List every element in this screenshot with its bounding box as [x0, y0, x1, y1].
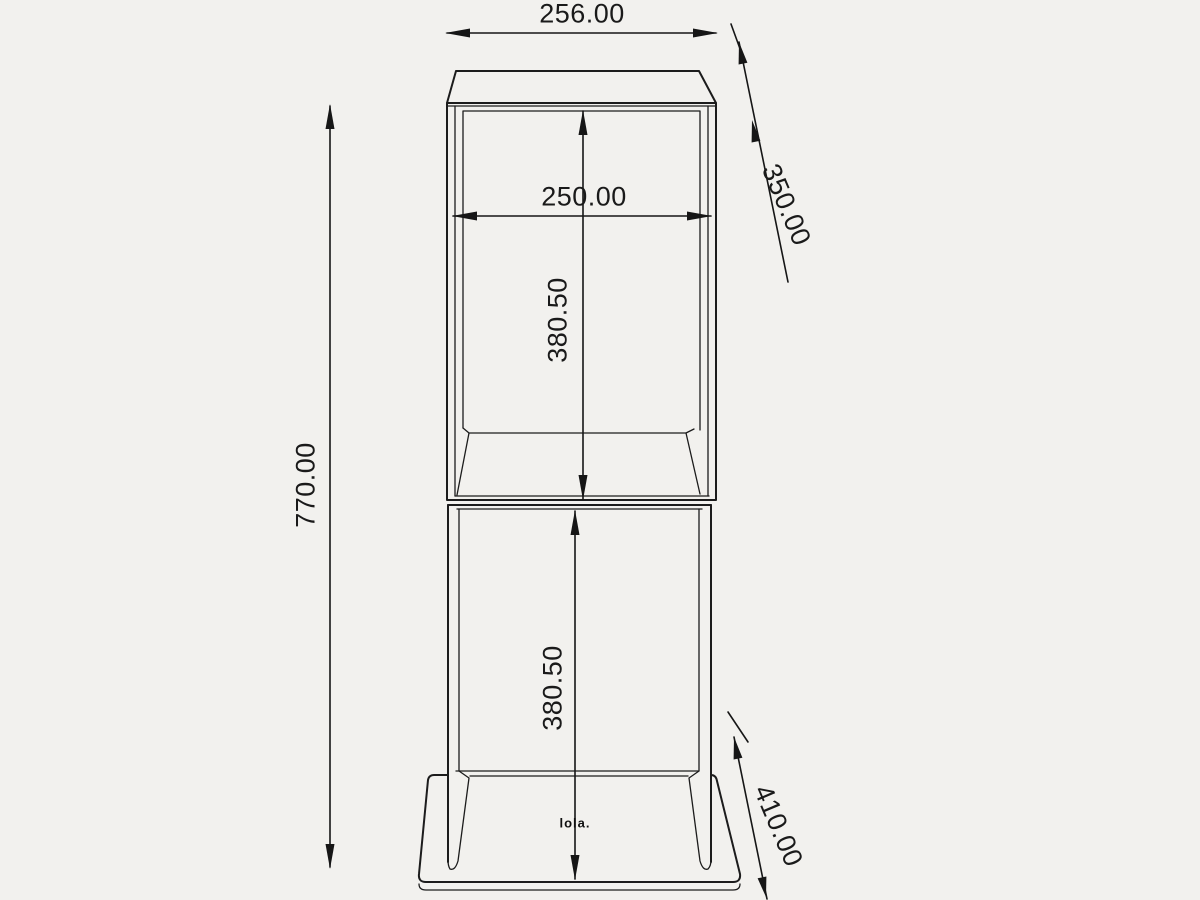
brand-logo-text: lola.	[559, 816, 590, 831]
dim-label-overall-height: 770.00	[291, 442, 322, 528]
dim-top-depth	[731, 24, 788, 282]
upper-box	[447, 103, 716, 500]
dim-inner-width	[452, 212, 712, 221]
dim-label-upper-compartment-height: 380.50	[543, 277, 574, 363]
lower-box	[448, 505, 711, 862]
dim-overall-height	[326, 104, 335, 869]
dim-top-width	[445, 29, 718, 38]
dim-label-top-width: 256.00	[539, 0, 625, 30]
dim-label-lower-compartment-height: 380.50	[538, 645, 569, 731]
upper-shelf	[457, 428, 700, 495]
technical-drawing-canvas: 256.00 350.00 250.00 380.50 770.00 380.5…	[0, 0, 1200, 900]
drawing-linework	[0, 0, 1200, 900]
cabinet-top-face	[447, 71, 716, 103]
dim-upper-height	[579, 110, 588, 500]
dim-label-inner-width: 250.00	[541, 182, 627, 213]
